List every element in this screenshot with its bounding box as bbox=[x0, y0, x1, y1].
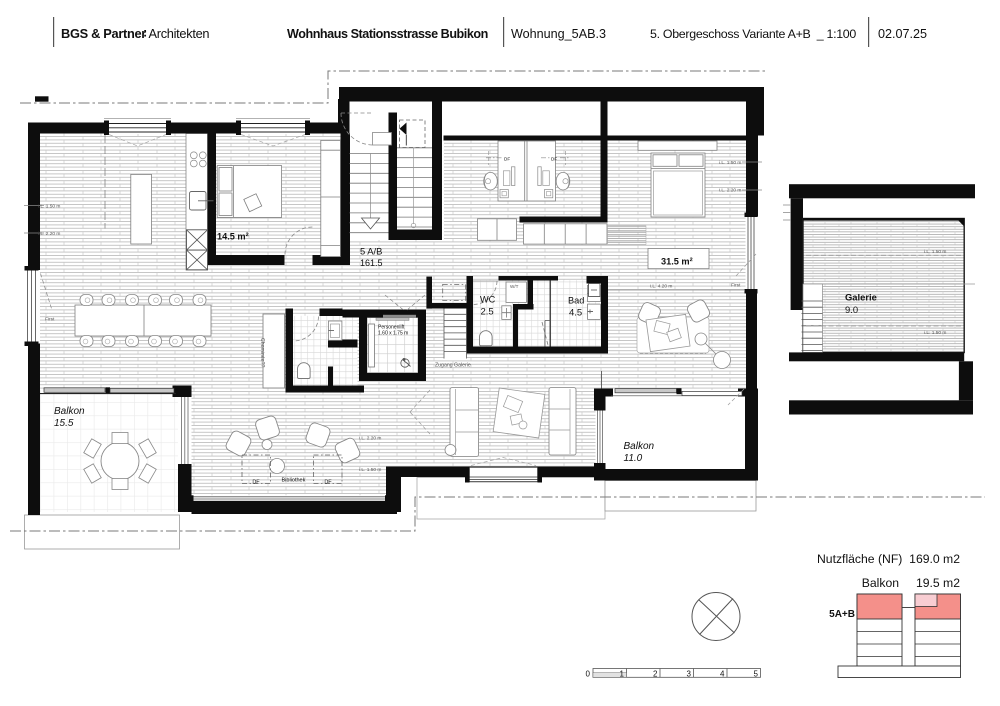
svg-text:4.5: 4.5 bbox=[569, 308, 582, 319]
svg-text:11.0: 11.0 bbox=[624, 453, 643, 464]
svg-text:Balkon: Balkon bbox=[54, 406, 85, 417]
svg-text:1.60 x 1.75 m: 1.60 x 1.75 m bbox=[378, 331, 408, 337]
svg-text:1: 1 bbox=[620, 670, 625, 679]
svg-text:02.07.25: 02.07.25 bbox=[878, 27, 927, 41]
svg-text:Balkon: Balkon bbox=[862, 576, 899, 590]
svg-text:Nutzfläche (NF): Nutzfläche (NF) bbox=[817, 552, 902, 566]
svg-text:i.L. 1.50 m: i.L. 1.50 m bbox=[924, 330, 946, 336]
svg-text:2.5: 2.5 bbox=[481, 307, 494, 318]
svg-text:DF: DF bbox=[504, 157, 510, 162]
svg-text:BGS & Partner: BGS & Partner bbox=[61, 26, 146, 41]
svg-text:9.0: 9.0 bbox=[845, 304, 858, 315]
svg-text:i.L. 1.50 m: i.L. 1.50 m bbox=[359, 467, 381, 473]
svg-text:First: First bbox=[45, 317, 55, 323]
svg-text:i.L. 1.50 m: i.L. 1.50 m bbox=[719, 160, 741, 166]
svg-text:15.5: 15.5 bbox=[54, 418, 74, 429]
svg-text:14.5 m²: 14.5 m² bbox=[217, 232, 249, 242]
svg-text:19.5 m2: 19.5 m2 bbox=[916, 576, 960, 590]
svg-text:i.L. 2.20 m: i.L. 2.20 m bbox=[38, 231, 60, 237]
svg-text:4: 4 bbox=[720, 670, 725, 679]
svg-text:Bad: Bad bbox=[568, 296, 584, 306]
svg-text:Zugang Galerie: Zugang Galerie bbox=[435, 363, 471, 369]
svg-text:i.L. 2.20 m: i.L. 2.20 m bbox=[359, 436, 381, 442]
svg-text:169.0 m2: 169.0 m2 bbox=[909, 552, 960, 566]
svg-text:W/T: W/T bbox=[510, 284, 519, 289]
svg-text:5. Obergeschoss Variante A+B: 5. Obergeschoss Variante A+B _ 1:100 bbox=[650, 27, 856, 41]
svg-text:DF: DF bbox=[252, 480, 260, 486]
svg-text:Balkon: Balkon bbox=[624, 441, 655, 452]
svg-text:i.L. 4.20 m: i.L. 4.20 m bbox=[650, 284, 672, 290]
svg-text:i.L. 1.50 m: i.L. 1.50 m bbox=[924, 249, 946, 255]
svg-text:Wohnung_5AB.3: Wohnung_5AB.3 bbox=[511, 27, 606, 41]
svg-text:Bibliothek: Bibliothek bbox=[282, 478, 306, 484]
svg-text:DF: DF bbox=[324, 480, 332, 486]
svg-text:3: 3 bbox=[687, 670, 692, 679]
svg-text:Architekten: Architekten bbox=[149, 26, 210, 41]
svg-text:0: 0 bbox=[586, 670, 591, 679]
svg-text:5: 5 bbox=[754, 670, 759, 679]
svg-text:Wohnhaus Stationsstrasse Bubik: Wohnhaus Stationsstrasse Bubikon bbox=[287, 27, 488, 41]
svg-text:i.L. 2.20 m: i.L. 2.20 m bbox=[719, 188, 741, 194]
svg-text::: : bbox=[143, 25, 147, 40]
svg-text:WC: WC bbox=[480, 295, 496, 305]
svg-text:5A+B: 5A+B bbox=[829, 609, 855, 620]
svg-text:DF: DF bbox=[551, 157, 557, 162]
svg-text:5 A/B: 5 A/B bbox=[360, 246, 382, 257]
svg-text:Galerie: Galerie bbox=[845, 292, 877, 303]
svg-text:2: 2 bbox=[653, 670, 658, 679]
svg-text:Cheminée??: Cheminée?? bbox=[259, 338, 265, 368]
svg-text:First: First bbox=[731, 283, 741, 289]
svg-text:31.5 m²: 31.5 m² bbox=[661, 257, 693, 267]
svg-text:i.L. 1.50 m: i.L. 1.50 m bbox=[38, 204, 60, 210]
svg-text:161.5: 161.5 bbox=[360, 258, 383, 268]
